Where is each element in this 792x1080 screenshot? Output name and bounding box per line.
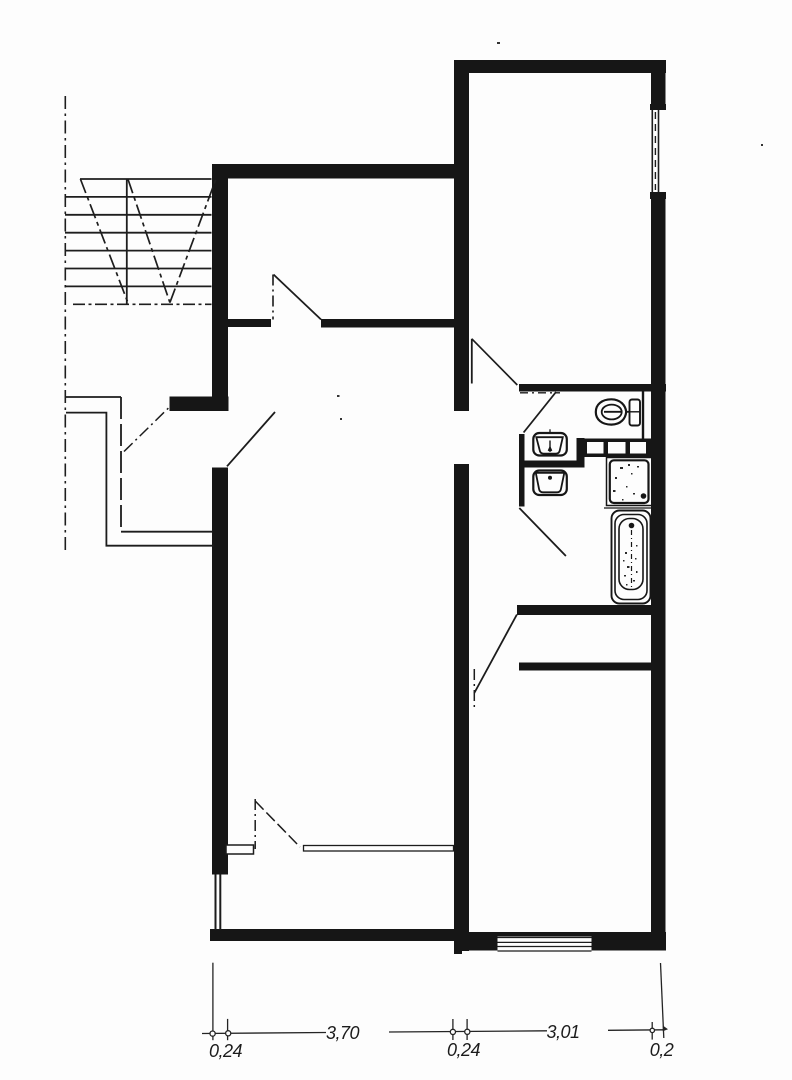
svg-text:3,01: 3,01 — [546, 1022, 579, 1042]
svg-text:0,24: 0,24 — [209, 1041, 243, 1061]
svg-text:3,70: 3,70 — [326, 1023, 360, 1043]
svg-text:0,24: 0,24 — [447, 1040, 481, 1060]
svg-text:0,2: 0,2 — [650, 1040, 674, 1060]
